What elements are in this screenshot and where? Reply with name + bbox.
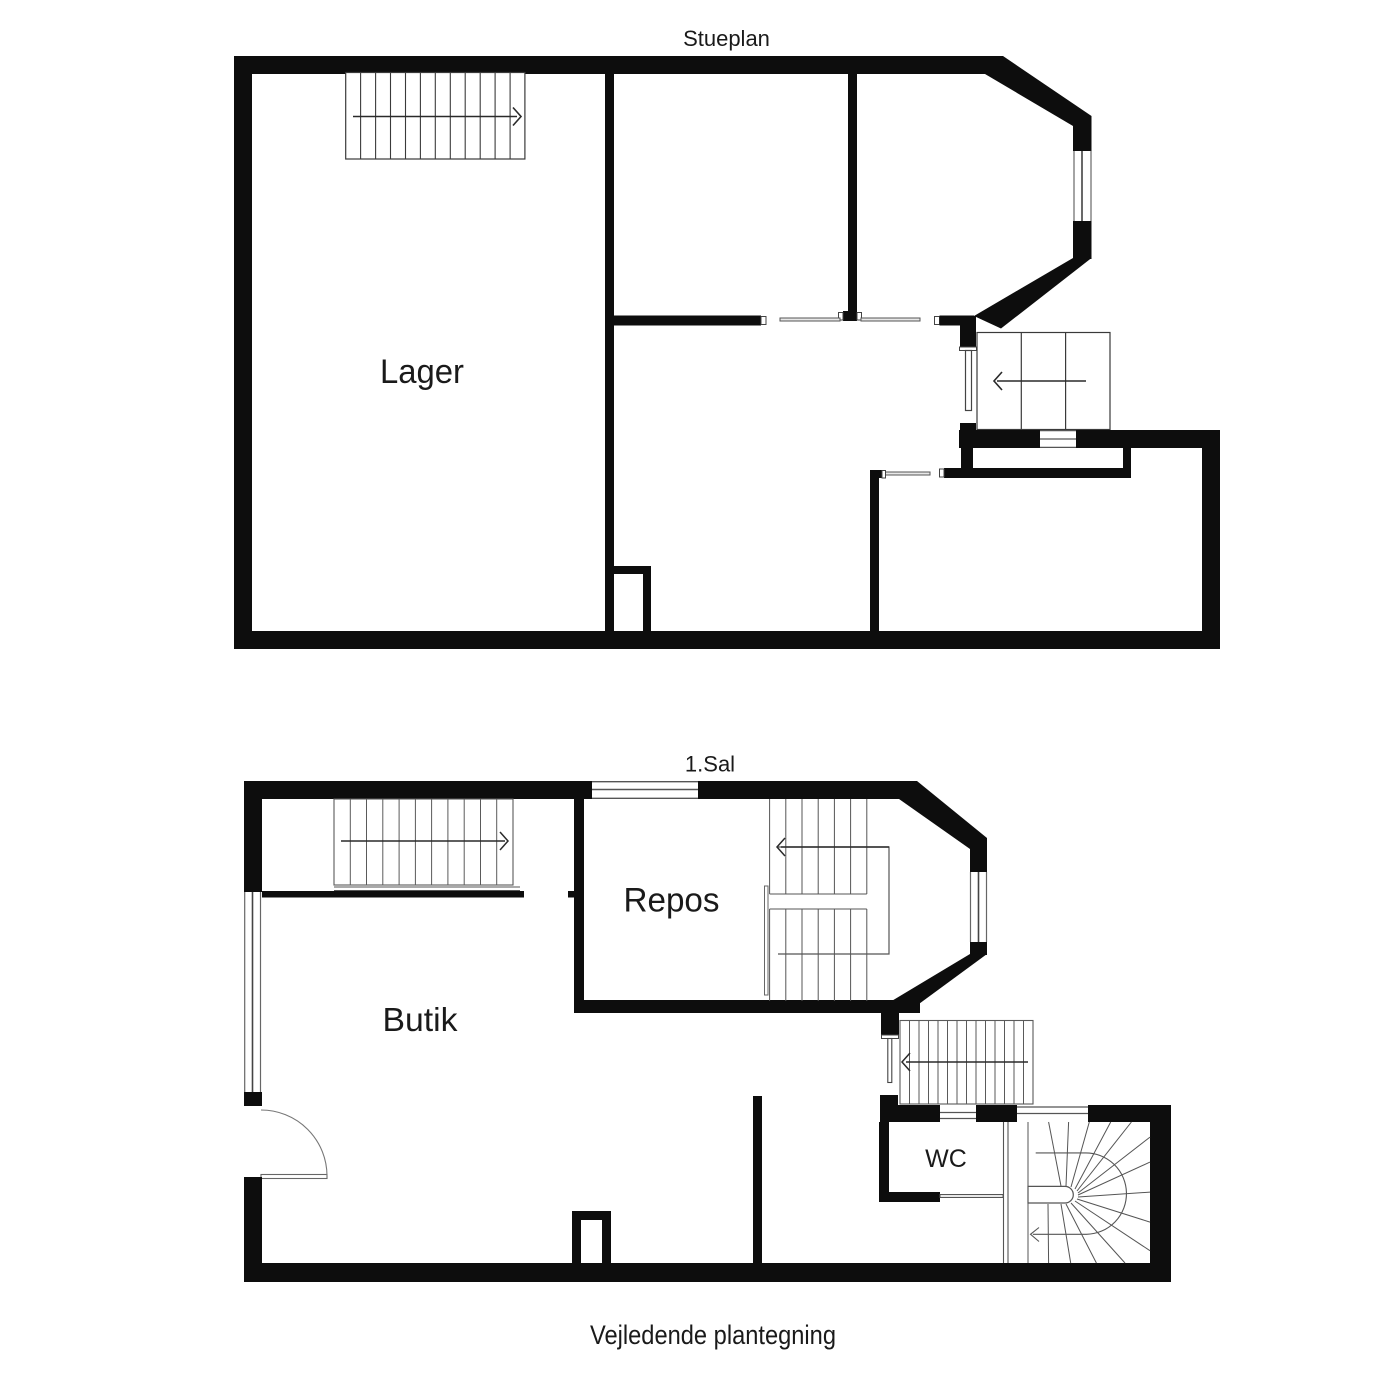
- svg-text:Stueplan: Stueplan: [683, 26, 770, 51]
- svg-text:Lager: Lager: [380, 353, 464, 391]
- svg-text:WC: WC: [925, 1145, 967, 1173]
- svg-text:Vejledende plantegning: Vejledende plantegning: [590, 1320, 836, 1350]
- svg-text:Repos: Repos: [624, 882, 720, 920]
- svg-text:1.Sal: 1.Sal: [685, 752, 735, 777]
- svg-text:Butik: Butik: [383, 1001, 458, 1038]
